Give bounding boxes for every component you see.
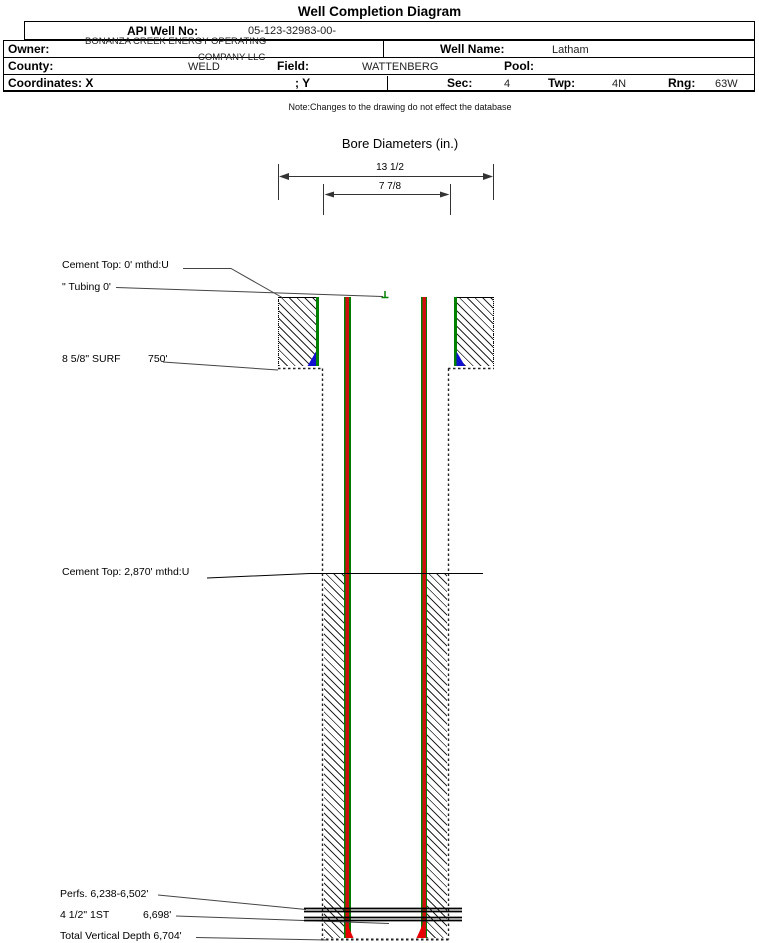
well-completion-diagram-page: Well Completion Diagram API Well No: 05-…	[0, 0, 759, 943]
arrowhead	[483, 173, 493, 180]
cement-top-production-line	[207, 574, 483, 579]
surface-shoe-left	[308, 352, 317, 367]
leader-perforations	[158, 895, 306, 910]
leader-surface-casing	[163, 362, 278, 370]
arrowhead	[325, 192, 335, 198]
production-shoe-right	[417, 922, 425, 939]
production-shoe-left	[346, 922, 354, 939]
arrowhead	[279, 173, 289, 180]
wellbore-lines-layer	[0, 0, 759, 943]
arrowhead	[440, 192, 450, 198]
leader-tubing	[116, 288, 383, 297]
leader-cement-top-surface	[183, 269, 283, 299]
surface-shoe-right	[457, 352, 466, 367]
leader-total-depth	[196, 938, 327, 941]
